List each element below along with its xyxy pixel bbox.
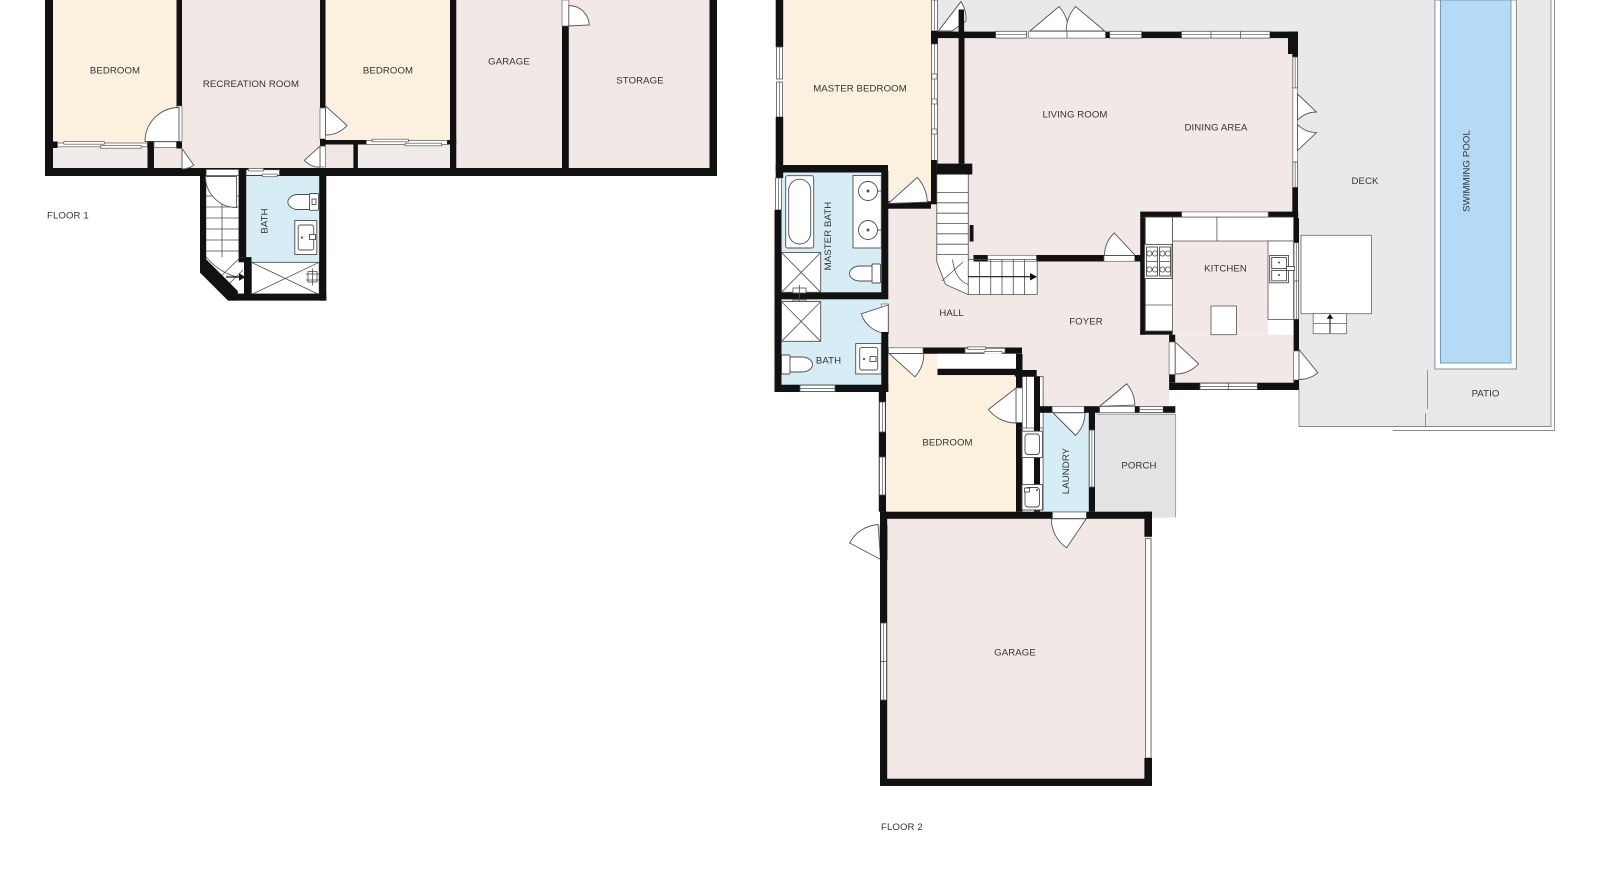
svg-text:FLOOR 2: FLOOR 2 xyxy=(881,822,923,833)
svg-text:DINING AREA: DINING AREA xyxy=(1185,123,1248,134)
svg-text:GARAGE: GARAGE xyxy=(488,57,530,68)
svg-text:DECK: DECK xyxy=(1351,176,1379,187)
svg-text:PORCH: PORCH xyxy=(1121,461,1156,472)
svg-text:LAUNDRY: LAUNDRY xyxy=(1061,447,1072,494)
svg-text:FOYER: FOYER xyxy=(1069,317,1103,328)
svg-text:BEDROOM: BEDROOM xyxy=(922,438,972,449)
svg-text:RECREATION ROOM: RECREATION ROOM xyxy=(203,79,299,90)
svg-text:MASTER BATH: MASTER BATH xyxy=(823,202,834,271)
svg-text:BATH: BATH xyxy=(816,356,841,367)
svg-text:SWIMMING POOL: SWIMMING POOL xyxy=(1462,130,1473,212)
svg-text:BATH: BATH xyxy=(260,208,271,233)
svg-text:MASTER BEDROOM: MASTER BEDROOM xyxy=(813,84,907,95)
svg-text:GARAGE: GARAGE xyxy=(994,648,1036,659)
svg-text:LIVING ROOM: LIVING ROOM xyxy=(1042,110,1107,121)
svg-text:BEDROOM: BEDROOM xyxy=(90,66,140,77)
svg-text:FLOOR 1: FLOOR 1 xyxy=(47,211,89,222)
svg-text:STORAGE: STORAGE xyxy=(616,76,663,87)
svg-text:HALL: HALL xyxy=(939,308,964,319)
svg-text:PATIO: PATIO xyxy=(1472,389,1500,400)
svg-text:KITCHEN: KITCHEN xyxy=(1204,264,1247,275)
svg-text:BEDROOM: BEDROOM xyxy=(363,66,413,77)
